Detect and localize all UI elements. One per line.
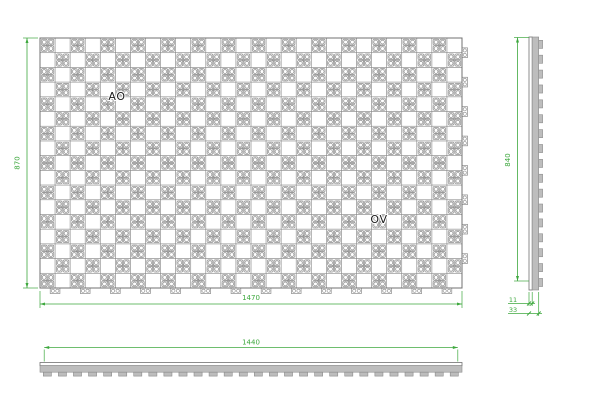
dim-plan-width: 1440 xyxy=(242,339,260,347)
front-view-panel xyxy=(40,38,468,294)
dim-thickness-inner: 11 xyxy=(509,296,517,304)
dim-thickness-outer: 33 xyxy=(509,306,517,314)
dim-front-width: 1470 xyxy=(242,294,260,302)
bottom-view-section xyxy=(40,363,462,377)
dim-side-height: 840 xyxy=(504,153,512,166)
side-view-section xyxy=(529,37,543,290)
label-ao: AO xyxy=(108,90,125,103)
label-ov: OV xyxy=(370,213,387,226)
dim-front-height: 870 xyxy=(14,156,22,169)
drawing-sheet: 870 1470 840 1440 11 33 AO OV xyxy=(0,0,600,420)
cad-drawing: 870 1470 840 1440 11 33 AO OV xyxy=(0,0,600,420)
